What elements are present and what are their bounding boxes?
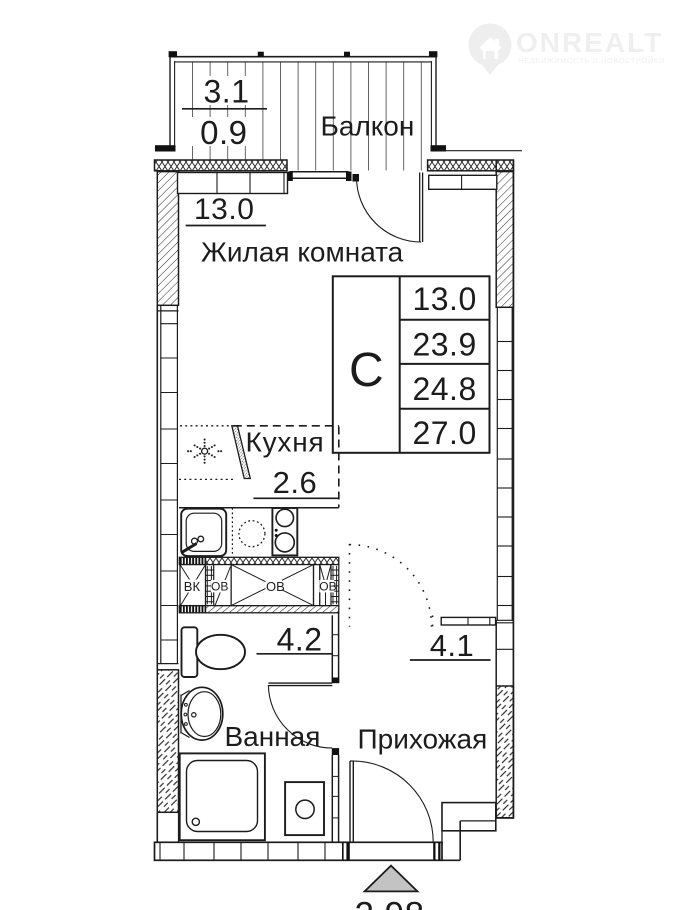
svg-text:0.9: 0.9 [200,114,247,151]
svg-text:27.0: 27.0 [412,415,476,451]
svg-text:ОВ: ОВ [266,579,285,594]
svg-text:4.2: 4.2 [277,622,323,658]
svg-text:2.98: 2.98 [354,896,424,910]
svg-text:Прихожая: Прихожая [358,724,488,755]
svg-text:С: С [349,344,384,397]
svg-text:4.1: 4.1 [430,628,475,663]
svg-text:13.0: 13.0 [412,281,476,317]
svg-text:ОВ: ОВ [211,580,228,594]
svg-text:Жилая комната: Жилая комната [201,236,404,267]
svg-text:Балкон: Балкон [320,110,414,141]
svg-text:НЕДВИЖИМОСТЬ И НОВОСТРОЙКИ: НЕДВИЖИМОСТЬ И НОВОСТРОЙКИ [518,56,665,65]
svg-text:ONREALT: ONREALT [516,27,663,58]
svg-text:13.0: 13.0 [194,193,254,226]
svg-text:ОВ: ОВ [319,580,336,594]
svg-text:23.9: 23.9 [412,326,476,362]
svg-text:Кухня: Кухня [246,427,325,458]
svg-text:24.8: 24.8 [412,371,476,407]
svg-text:ВК: ВК [184,579,201,594]
svg-text:3.1: 3.1 [204,74,250,110]
svg-text:2.6: 2.6 [273,465,318,500]
svg-text:Ванная: Ванная [225,721,321,752]
